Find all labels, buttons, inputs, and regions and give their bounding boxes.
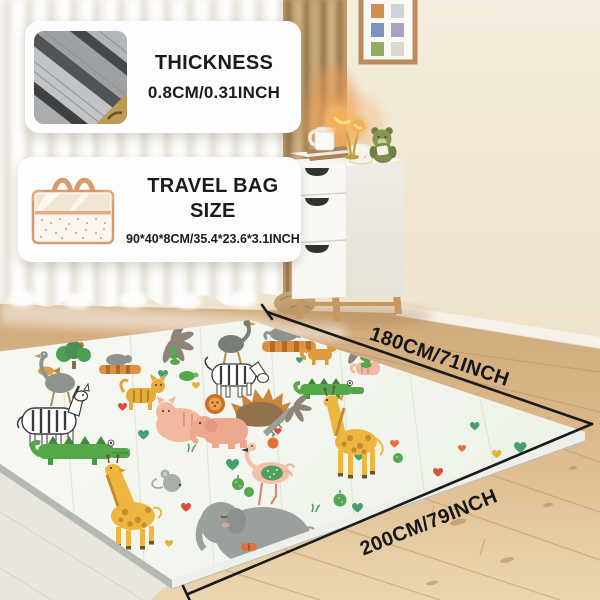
- lion: [205, 394, 225, 414]
- thickness-title: THICKNESS: [133, 51, 295, 76]
- travel-bag-value: 90*40*8CM/35.4*23.6*3.1INCH: [126, 232, 300, 246]
- thickness-value: 0.8CM/0.31INCH: [133, 83, 295, 103]
- travel-bag-illustration: [26, 169, 120, 251]
- gallery-frame: [361, 0, 415, 62]
- dresser-shadow: [263, 304, 433, 328]
- product-photo: 180CM/71INCH 200CM/79INCH: [0, 0, 600, 600]
- travel-bag-title: TRAVEL BAG SIZE: [126, 174, 300, 224]
- mat-edge-photo: [34, 31, 127, 124]
- butterfly: [241, 543, 257, 551]
- dresser-side: [346, 156, 404, 297]
- travel-bag-card: TRAVEL BAG SIZE 90*40*8CM/35.4*23.6*3.1I…: [18, 157, 301, 262]
- thickness-card: THICKNESS 0.8CM/0.31INCH: [25, 21, 301, 133]
